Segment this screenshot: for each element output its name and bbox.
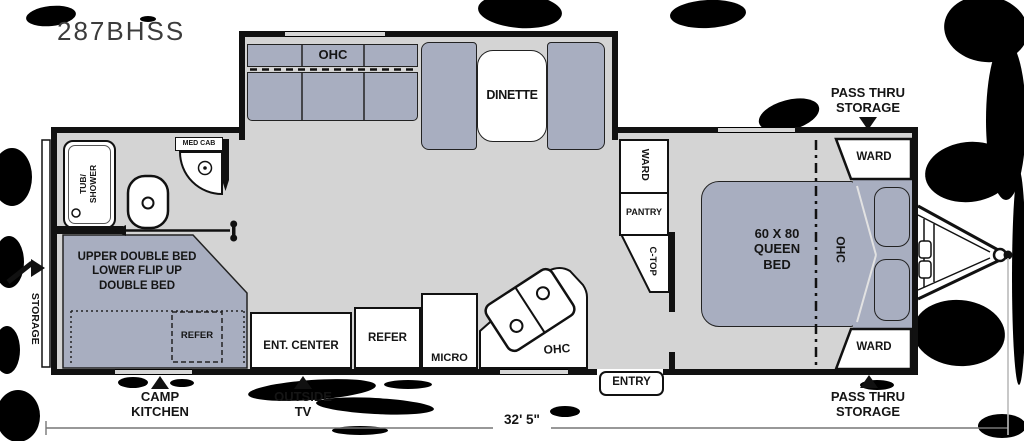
ink-blob	[978, 414, 1024, 438]
queen-bed-label: 60 X 80 QUEEN BED	[727, 226, 827, 272]
pillow	[874, 187, 910, 247]
ink-blob	[332, 426, 388, 435]
outside-tv-label: OUTSIDE TV	[253, 390, 353, 420]
entry-label: ENTRY	[599, 376, 664, 389]
ink-blob	[0, 390, 40, 441]
bunk-refer-label: REFER	[172, 331, 222, 341]
pillow	[874, 259, 910, 321]
ink-blob	[170, 379, 194, 387]
ink-blob	[384, 380, 432, 389]
floorplan-287bhss: 287BHSS	[0, 0, 1024, 441]
ink-blob	[550, 406, 580, 417]
tub-shower-label: TUB/ SHOWER	[78, 144, 100, 224]
storage-left-label: STORAGE	[28, 290, 40, 348]
rear-bumper	[42, 140, 50, 367]
camp-kitchen-label: CAMP KITCHEN	[110, 390, 210, 420]
pantry-label: PANTRY	[619, 208, 669, 218]
page-title: 287BHSS	[57, 16, 185, 47]
bed-ohc-label: OHC	[833, 230, 846, 270]
storage-arrow	[31, 259, 45, 277]
refer-label: REFER	[354, 332, 421, 345]
ink-blob	[0, 236, 24, 288]
window	[285, 31, 385, 37]
ward-column-label: WARD	[638, 143, 650, 187]
ink-blob	[477, 0, 563, 31]
ink-blob	[118, 377, 148, 388]
ink-blob	[669, 0, 746, 30]
pass-thru-top-arrow	[859, 117, 877, 130]
hitch-frame	[918, 206, 1000, 299]
ink-blob	[1012, 170, 1024, 385]
micro-label: MICRO	[421, 352, 478, 364]
propane-tank	[919, 241, 931, 258]
hitch-frame-inner	[918, 215, 990, 290]
window	[718, 127, 795, 133]
c-top-label: C-TOP	[647, 239, 657, 283]
outside-tv-arrow	[294, 376, 312, 389]
sofa	[247, 72, 418, 121]
bunk-label: UPPER DOUBLE BED LOWER FLIP UP DOUBLE BE…	[62, 250, 212, 293]
pass-thru-top-label: PASS THRU STORAGE	[808, 86, 928, 116]
pass-thru-bottom-arrow	[860, 375, 878, 388]
ink-blob	[910, 296, 1007, 370]
sofa-ohc-label: OHC	[300, 48, 366, 62]
pass-thru-bottom-label: PASS THRU STORAGE	[808, 390, 928, 420]
camp-kitchen-arrow	[151, 376, 169, 389]
med-cab-label: MED CAB	[176, 140, 222, 148]
ent-center-label: ENT. CENTER	[250, 340, 352, 353]
ink-blob	[0, 148, 32, 206]
dinette-bench-left	[421, 42, 477, 150]
ward-front-bottom-label: WARD	[840, 341, 908, 354]
length-dimension-label: 32' 5"	[494, 413, 550, 428]
ward-front-top-label: WARD	[840, 151, 908, 164]
window	[115, 369, 192, 375]
window	[500, 369, 568, 375]
propane-tank	[919, 261, 931, 278]
dinette-bench-right	[547, 42, 605, 150]
dinette-label: DINETTE	[479, 89, 545, 103]
hitch-coupler	[994, 249, 1006, 261]
ink-blob	[0, 326, 20, 374]
